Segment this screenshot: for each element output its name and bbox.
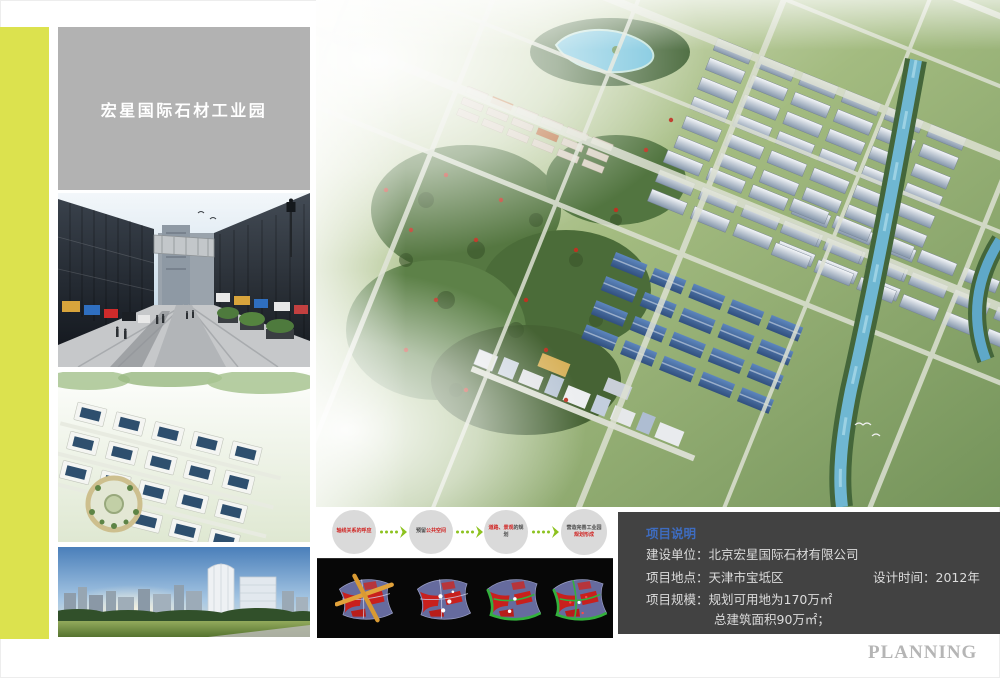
flow-step-4: 营造完善工业园规划形成: [561, 509, 607, 555]
info-row-scale: 项目规模：规划可用地为170万㎡: [646, 589, 832, 608]
flow-step-1: 轴线关系的呼应: [332, 510, 376, 554]
flow-step-2: 预留公共空间: [409, 510, 453, 554]
dashed-arrow-icon: [531, 525, 559, 539]
flow-step-3: 道路、景观的规划: [484, 510, 528, 554]
accent-stripe: [0, 27, 49, 639]
concept-diagram-final: [549, 572, 611, 624]
page-title: 宏星国际石材工业园: [101, 97, 268, 121]
info-design-time: 设计时间：2012年: [873, 567, 980, 586]
flow-step-1-label: 轴线关系的呼应: [336, 528, 371, 534]
concept-diagram-roads: [483, 572, 545, 624]
masterplan-aerial-rendering: [316, 0, 1000, 507]
info-row-area: 总建筑面积90万㎡；: [646, 609, 830, 628]
project-info-panel: 项目说明 建设单位：北京宏星国际石材有限公司 项目地点：天津市宝坻区 设计时间：…: [618, 512, 1000, 634]
circular-plaza: [88, 478, 140, 530]
aerial-park-photo: [58, 372, 310, 542]
title-box: 宏星国际石材工业园: [58, 27, 310, 190]
street-view-photo: [58, 193, 310, 367]
city-skyline-photo: [58, 547, 310, 637]
concept-diagram-panel: [317, 558, 613, 638]
concept-diagram-axes: [335, 572, 397, 624]
dashed-arrow-icon: [379, 525, 407, 539]
flow-step-3-label: 道路、景观: [488, 525, 513, 531]
flow-step-4-label: 营造完善工业园: [566, 525, 601, 533]
planning-label: PLANNING: [868, 642, 994, 664]
dashed-arrow-icon: [455, 525, 483, 539]
info-title: 项目说明: [646, 523, 696, 542]
info-row-location: 项目地点：天津市宝坻区 设计时间：2012年: [646, 567, 784, 586]
sky-bridge: [154, 235, 214, 257]
concept-diagram-nodes: [413, 572, 475, 624]
presentation-board: 宏星国际石材工业园: [0, 0, 1000, 678]
flow-step-2-label: 预留: [416, 528, 426, 534]
info-row-owner: 建设单位：北京宏星国际石材有限公司: [646, 544, 859, 563]
